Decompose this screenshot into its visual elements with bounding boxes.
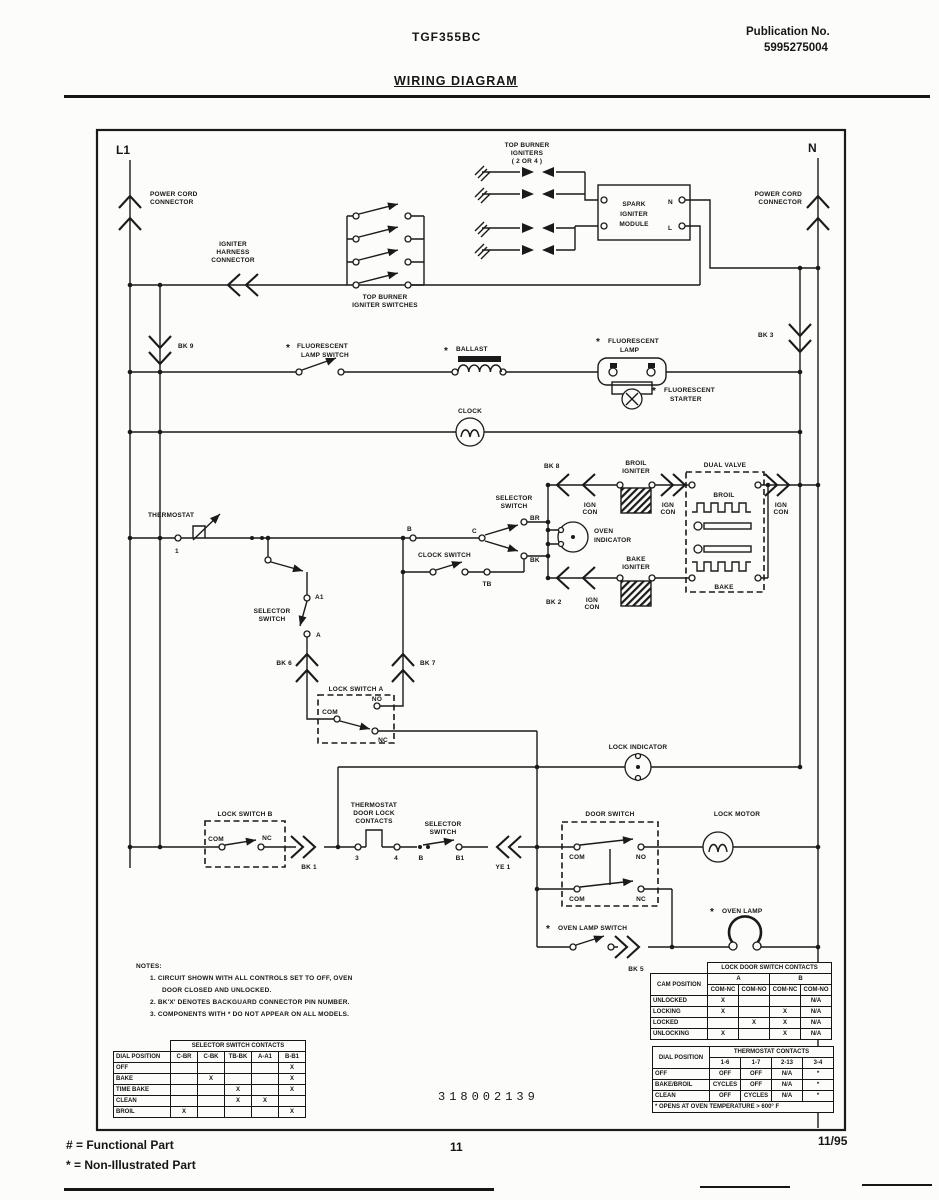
table-row: LOCKING X X N/A [651,1007,832,1018]
fluorescent-lamp-symbol [598,358,666,385]
oven-indicator-label-1: OVEN [594,528,613,535]
lock-switch-a-no: NO [372,696,382,703]
thermostat-terminal-1: 1 [175,548,179,555]
table-row: BAKE X X [114,1074,306,1085]
door-switch-com-top: COM [569,854,585,861]
oven-lamp-label: OVEN LAMP [722,908,763,915]
selector-bottom-label-2: SWITCH [430,829,457,836]
selector-bottom-label-1: SELECTOR [425,821,462,828]
part-number: 318002139 [438,1090,539,1104]
lock-switch-a-com: COM [322,709,338,716]
note-1: 1. CIRCUIT SHOWN WITH ALL CONTROLS SET T… [136,973,481,985]
lock-indicator-label: LOCK INDICATOR [609,744,668,751]
igniter-harness-label-3: CONNECTOR [211,257,255,264]
lock-table-title: LOCK DOOR SWITCH CONTACTS [708,963,832,974]
oven-indicator-label-2: INDICATOR [594,537,631,544]
spark-module-label-3: MODULE [619,221,649,228]
valve-bake-label: BAKE [714,584,734,591]
bk1-label: BK 1 [301,864,317,871]
door-lock-contacts-label-3: CONTACTS [355,818,393,825]
l1-label: L1 [116,143,130,157]
lock-indicator-symbol [625,754,651,781]
fluorescent-lamp-asterisk: * [596,337,600,348]
lock-switch-a-label: LOCK SWITCH A [329,686,384,693]
note-2: 2. BK'X' DENOTES BACKGUARD CONNECTOR PIN… [136,997,481,1009]
fluorescent-switch-label-2: LAMP SWITCH [301,352,349,359]
notes-title: NOTES: [136,961,481,973]
terminal-b-lower: B [419,855,424,862]
igniters-label-2: IGNITERS [511,150,544,157]
selector-switch-contacts-table: SELECTOR SWITCH CONTACTS DIAL POSITION C… [113,1040,306,1118]
ign-con-label-3b: CON [773,509,788,516]
lock-switch-b-label: LOCK SWITCH B [218,811,273,818]
ign-con-label-1b: CON [582,509,597,516]
table-row: OFF X [114,1063,306,1074]
starter-label-1: FLUORESCENT [664,387,715,394]
door-lock-contacts-label-2: DOOR LOCK [353,810,395,817]
oven-lamp-symbol [729,916,761,950]
table-row: CLEAN X X [114,1096,306,1107]
terminal-bk: BK [530,557,540,564]
table-row: BROIL X X [114,1107,306,1118]
selector-table-title: SELECTOR SWITCH CONTACTS [171,1041,306,1052]
spark-module-label-1: SPARK [622,201,645,208]
lock-motor-label: LOCK MOTOR [714,811,760,818]
table-row: TIME BAKE X X [114,1085,306,1096]
wiring-diagram-page: TGF355BC Publication No. 5995275004 WIRI… [0,0,939,1200]
bake-igniter-label-1: BAKE [626,556,646,563]
bk9-label: BK 9 [178,343,194,350]
table-row: BAKE/BROIL CYCLES OFF N/A * [653,1080,834,1091]
door-switch-label: DOOR SWITCH [585,811,634,818]
ballast-asterisk: * [444,346,448,357]
door-lock-contacts-label-1: THERMOSTAT [351,802,397,809]
terminal-br: BR [530,515,540,522]
table-row: UNLOCKED X N/A [651,996,832,1007]
valve-broil-label: BROIL [713,492,734,499]
clock-label: CLOCK [458,408,482,415]
page-number: 11 [450,1140,463,1154]
dual-valve-label: DUAL VALVE [704,462,747,469]
bk8-label: BK 8 [544,463,560,470]
power-cord-right-label-2: CONNECTOR [758,199,802,206]
power-cord-left-label-1: POWER CORD [150,191,198,198]
ign-con-label-2b: CON [660,509,675,516]
terminal-b1: B1 [456,855,465,862]
fluorescent-lamp-label-2: LAMP [620,347,640,354]
terminal-3: 3 [355,855,359,862]
terminal-c: C [472,528,477,535]
top-burner-igniters [475,166,554,259]
igniters-label-3: ( 2 OR 4 ) [512,158,543,165]
selector-table-row-header: DIAL POSITION [114,1052,171,1063]
revision-date: 11/95 [818,1134,847,1148]
lock-switch-b-symbol [205,821,285,867]
terminal-a1: A1 [315,594,324,601]
bk6-label: BK 6 [276,660,292,667]
clock-switch-label: CLOCK SWITCH [418,552,471,559]
broil-igniter-label-2: IGNITER [622,468,650,475]
thermostat-contacts-table: DIAL POSITION THERMOSTAT CONTACTS 1-6 1-… [652,1046,834,1113]
selector-switch-lower [265,557,310,637]
bk2-label: BK 2 [546,599,562,606]
ign-con-label-4b: CON [584,604,599,611]
ign-con-label-2a: IGN [662,502,674,509]
oven-control-wires [130,485,558,719]
footer-rule-left [64,1188,494,1191]
lock-table-group-a: A [708,974,770,985]
footer-rule-mid [700,1186,790,1188]
thermostat-label: THERMOSTAT [148,512,194,519]
notes-block: NOTES: 1. CIRCUIT SHOWN WITH ALL CONTROL… [136,961,481,1021]
ign-con-label-4a: IGN [586,597,598,604]
lock-switch-b-nc: NC [262,835,272,842]
oven-lamp-switch-label: OVEN LAMP SWITCH [558,925,627,932]
power-cord-left-label-2: CONNECTOR [150,199,194,206]
bake-igniter-label-2: IGNITER [622,564,650,571]
igniters-label-1: TOP BURNER [505,142,550,149]
lock-table-group-b: B [770,974,832,985]
table-row: CLEAN OFF CYCLES N/A * [653,1091,834,1102]
footer-rule-right [862,1184,932,1186]
oven-lamp-asterisk: * [710,907,714,918]
clock-symbol [456,418,484,446]
ign-con-label-3a: IGN [775,502,787,509]
bk5-label: BK 5 [628,966,644,973]
dual-valve-symbol [686,472,764,592]
igniter-harness-label-2: HARNESS [216,249,250,256]
bake-igniter-symbol [617,575,655,606]
terminal-b: B [407,526,412,533]
power-cord-right-label-1: POWER CORD [755,191,803,198]
lock-motor-symbol [703,832,733,862]
igniter-harness-label-1: IGNITER [219,241,247,248]
door-switch-no: NO [636,854,646,861]
ye1-label: YE 1 [496,864,511,871]
selector-lower-label-2: SWITCH [259,616,286,623]
top-burner-circuit-wires [130,172,818,285]
fluorescent-lamp-label-1: FLUORESCENT [608,338,659,345]
lock-switch-b-com: COM [208,836,224,843]
thermostat-table-row-header: DIAL POSITION [653,1047,710,1069]
table-row: * OPENS AT OVEN TEMPERATURE > 600° F [653,1102,834,1113]
lock-door-switch-contacts-table: LOCK DOOR SWITCH CONTACTS CAM POSITION A… [650,962,832,1040]
terminal-a: A [316,632,321,639]
ign-con-label-1a: IGN [584,502,596,509]
ballast-symbol [452,356,506,375]
terminal-4: 4 [394,855,398,862]
igniter-valve-wires [548,485,818,578]
note-1b: DOOR CLOSED AND UNLOCKED. [136,985,481,997]
igniter-switches-label-1: TOP BURNER [363,294,408,301]
oven-indicator-symbol [558,522,588,552]
fluorescent-switch-label-1: FLUORESCENT [297,343,348,350]
broil-igniter-label-1: BROIL [625,460,646,467]
bk7-label: BK 7 [420,660,436,667]
table-row: OFF OFF OFF N/A * [653,1069,834,1080]
functional-part-legend: # = Functional Part [66,1138,174,1152]
door-switch-com-bottom: COM [569,896,585,903]
door-switch-nc: NC [636,896,646,903]
selector-lower-label-1: SELECTOR [254,608,291,615]
spark-n-terminal: N [668,199,673,206]
non-illustrated-part-legend: * = Non-Illustrated Part [66,1158,196,1172]
table-row: LOCKED X X N/A [651,1018,832,1029]
bk3-label: BK 3 [758,332,774,339]
spark-module-label-2: IGNITER [620,211,648,218]
thermostat-table-note: * OPENS AT OVEN TEMPERATURE > 600° F [653,1102,834,1113]
selector-upper-label-2: SWITCH [501,503,528,510]
lamp-switch-asterisk: * [286,343,290,354]
fluorescent-starter-symbol [612,382,652,409]
note-3: 3. COMPONENTS WITH * DO NOT APPEAR ON AL… [136,1009,481,1021]
lock-table-row-header: CAM POSITION [651,974,708,996]
starter-asterisk: * [652,386,656,397]
igniter-switches-label-2: IGNITER SWITCHES [352,302,418,309]
n-label: N [808,141,817,155]
broil-igniter-symbol [617,482,655,513]
spark-l-terminal: L [668,225,672,232]
table-row: UNLOCKING X X N/A [651,1029,832,1040]
starter-label-2: STARTER [670,396,702,403]
ballast-label: BALLAST [456,346,488,353]
oven-lamp-switch-asterisk: * [546,924,550,935]
lock-switch-a-nc: NC [378,737,388,744]
selector-upper-label-1: SELECTOR [496,495,533,502]
thermostat-table-title: THERMOSTAT CONTACTS [710,1047,834,1058]
terminal-tb: TB [482,581,491,588]
